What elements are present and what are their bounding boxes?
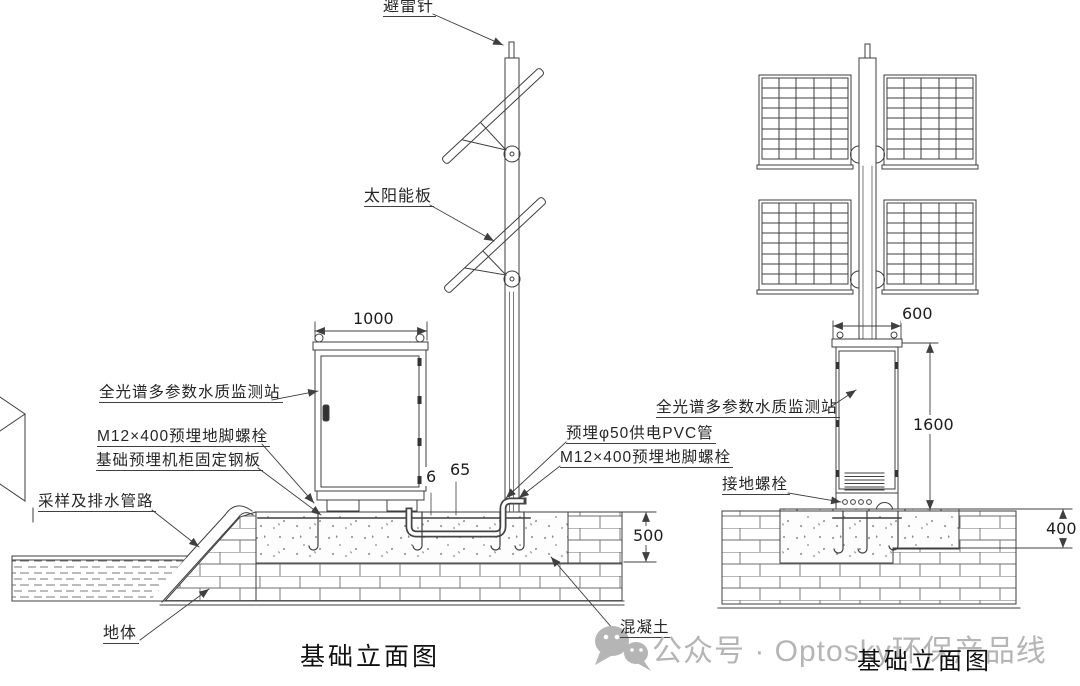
lightning-rod-tip (509, 42, 514, 58)
pole-bracket-upper (851, 146, 885, 163)
left-elevation-view (0, 42, 624, 605)
dim-cabinet-width-right: 600 (901, 304, 934, 323)
dim-plate-thickness: 6 (425, 467, 437, 486)
station-label-right: 全光谱多参数水质监测站 (656, 399, 840, 418)
intake-structure (0, 397, 33, 522)
grounding-bolt-label: 接地螺栓 (722, 476, 790, 495)
station-label-left: 全光谱多参数水质监测站 (99, 384, 283, 403)
brick-base (237, 563, 622, 601)
ground-body-label: 地体 (103, 625, 139, 644)
station-cabinet-front (832, 332, 902, 511)
solar-panel-upper-side (441, 67, 544, 164)
steel-plate-label: 基础预埋机柜固定钢板 (96, 452, 263, 471)
station-cabinet-side (313, 334, 428, 511)
solar-panel-label: 太阳能板 (364, 188, 434, 207)
dim-foundation-depth-left: 500 (632, 526, 665, 545)
solar-array-front (757, 75, 978, 294)
water-area (12, 556, 187, 600)
dim-cabinet-width-left: 1000 (352, 309, 395, 328)
foundation-right (718, 509, 1020, 608)
door-handle (323, 405, 329, 421)
pvc-conduit-label: 预埋φ50供电PVC管 (566, 425, 716, 444)
vent-grille (845, 473, 884, 490)
caption-left: 基础立面图 (300, 637, 440, 673)
anchor-bolt-label-mid: M12×400预埋地脚螺栓 (560, 449, 733, 468)
dim-foundation-depth-right: 400 (1045, 519, 1078, 538)
pole-bracket-lower (851, 271, 885, 288)
foundation-elevation-drawing-page: 避雷针 太阳能板 全光谱多参数水质监测站 M12×400预埋地脚螺栓 基础预埋机… (0, 0, 1080, 686)
lightning-rod-label: 避雷针 (383, 0, 436, 17)
lightning-rod-tip-front (865, 44, 870, 58)
embankment (150, 506, 256, 602)
dim-conduit-offset: 65 (449, 460, 471, 479)
solar-panel-lower-side (443, 196, 546, 293)
monitoring-pole-front (859, 44, 876, 339)
drawing-canvas (0, 0, 1080, 686)
sampling-pipe-label: 采样及排水管路 (38, 493, 156, 512)
dim-cabinet-height-right: 1600 (912, 415, 955, 434)
caption-right: 基础立面图 (857, 641, 992, 676)
anchor-bolt-label-left: M12×400预埋地脚螺栓 (97, 428, 270, 447)
